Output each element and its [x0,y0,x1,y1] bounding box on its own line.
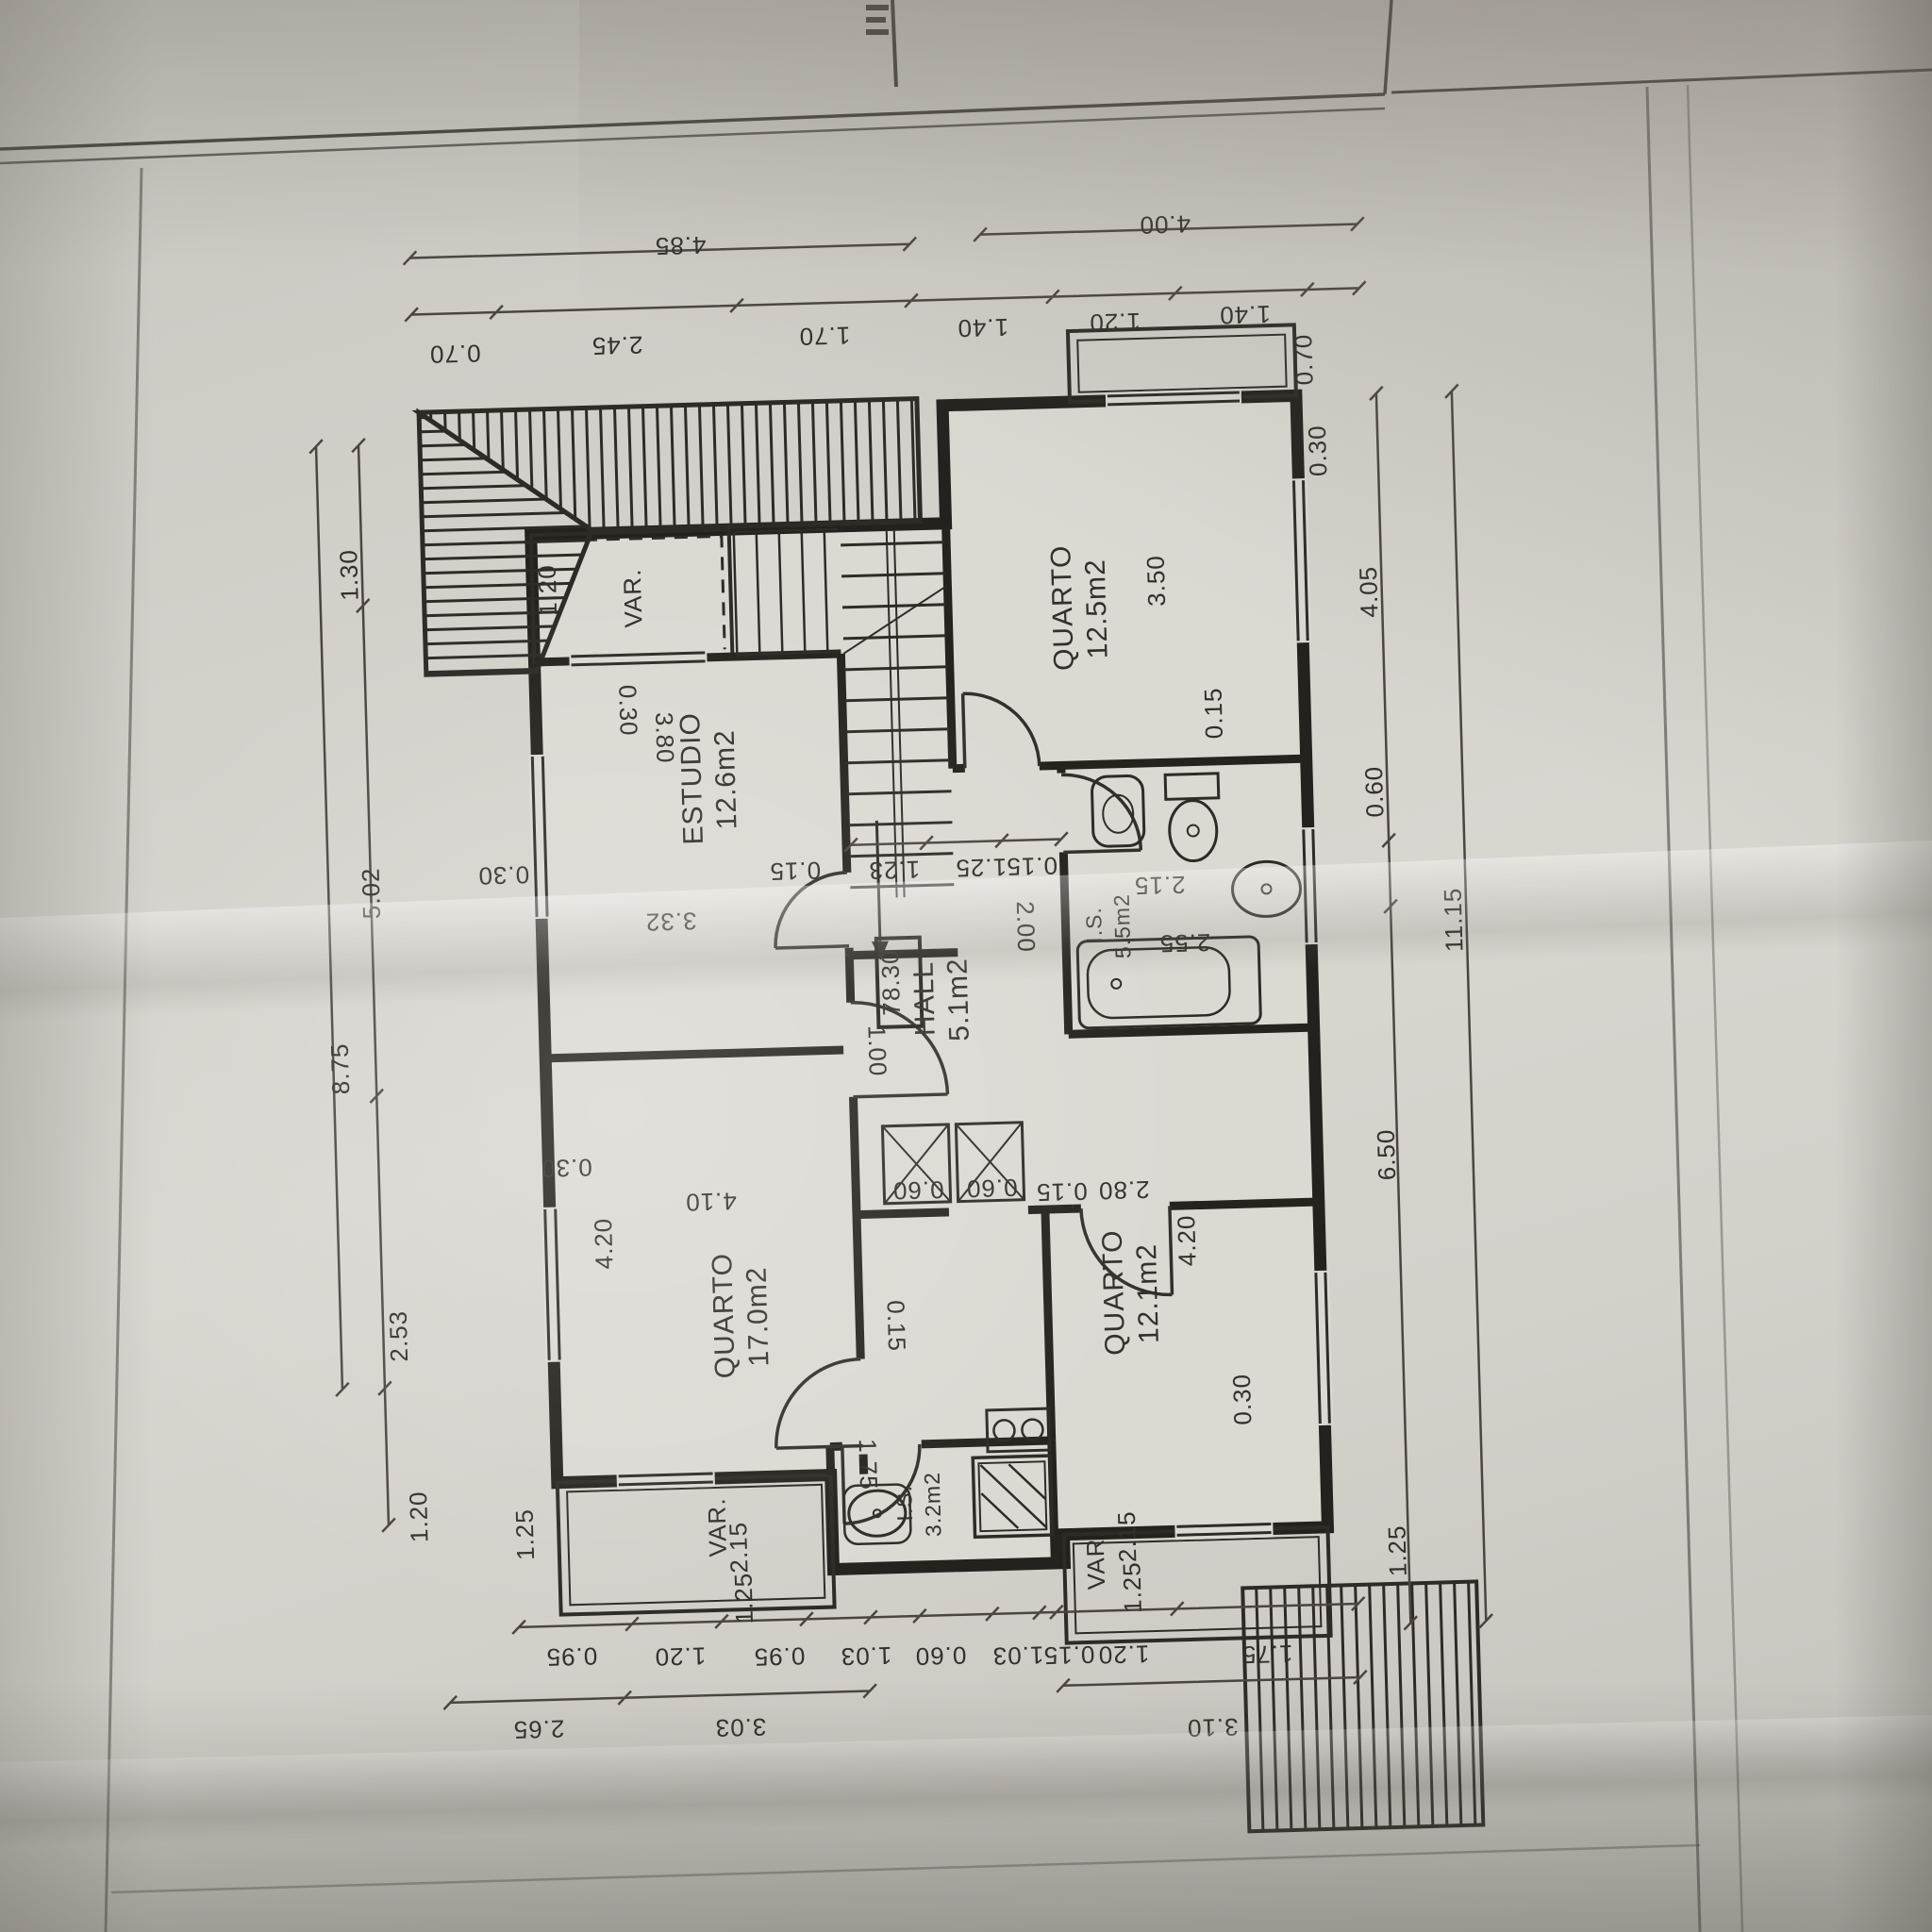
dim-label: 3.50 [1141,555,1172,607]
dim-label: 3.80 [650,711,680,763]
dim-label: 1.75 [854,1439,884,1491]
dim-label: 5.02 [357,867,387,919]
dim-label: 11.15 [1439,887,1469,952]
dim-label: 2.55 [1158,928,1210,958]
dim-label: 1.20 [1097,1640,1149,1670]
dim-label: 2.53 [384,1310,414,1362]
dim-label: 1.40 [1219,300,1271,330]
level-mark: 78.30 [875,949,906,1016]
dim-label: 3.10 [1187,1713,1239,1743]
terrace-hatch [1242,1581,1483,1831]
dim-label: 0.15 [1036,1177,1088,1207]
dim-label: 4.05 [1354,566,1384,618]
dim-label: 1.20 [1089,308,1141,338]
dim-label: 0.70 [1289,333,1319,385]
dim-label: 4.85 [655,231,707,261]
room-area-quarto-1: 12.5m2 [1080,558,1114,659]
balcony-var-bottom-left [558,1475,835,1615]
dim-label: 2.65 [512,1715,564,1745]
dim-label: 1.70 [798,322,850,352]
dim-label: 1.40 [957,313,1008,343]
dim-label: 2.45 [591,331,642,361]
dim-label: 6.50 [1372,1128,1402,1180]
room-area-quarto-2: 17.0m2 [741,1266,774,1367]
room-area-is-1: 5.5m2 [1109,893,1136,959]
room-label-is-1: I.S. [1081,907,1107,943]
dim-label: 0.60 [914,1641,966,1672]
dim-label: 2.80 [1098,1175,1150,1206]
dim-label: 2.15 [1112,1510,1142,1562]
dim-label: 0.30 [541,1153,592,1183]
dim-label: 3.03 [714,1713,766,1743]
dim-label: 4.20 [589,1217,619,1269]
dim-label: 0.15 [1199,687,1229,739]
dim-label: 1.25 [1382,1524,1412,1576]
dim-label: 1.25 [729,1572,759,1624]
dim-label: 4.00 [1139,209,1191,240]
dim-label: 1.20 [533,564,563,616]
dim-label: 4.10 [685,1187,737,1217]
sheet-corner-mark [866,8,889,32]
dim-label: 0.15 [882,1300,912,1352]
room-area-is-2: 3.2m2 [920,1472,946,1538]
dim-label: 0.70 [429,339,481,369]
room-label-quarto-2: QUARTO [707,1253,741,1379]
floor-plan-drawing: QUARTO 12.5m2 ESTUDIO 12.6m2 HALL 5.1m2 … [0,0,1932,1932]
dim-label: 1.20 [654,1641,706,1672]
dim-label: 4.20 [1172,1214,1202,1266]
room-label-is-2: I.S. [891,1485,917,1522]
dim-label: 0.30 [477,860,529,891]
dim-label: 0.30 [1303,425,1333,476]
dim-label: 1.25 [955,853,1007,883]
photo-of-floor-plan: QUARTO 12.5m2 ESTUDIO 12.6m2 HALL 5.1m2 … [0,0,1932,1932]
dim-label: 0.95 [753,1641,805,1672]
dim-label: 0.15 [1006,852,1058,882]
dim-label: 0.60 [966,1174,1018,1204]
dim-label: 1.00 [862,1024,892,1076]
dim-label: 0.30 [613,685,643,737]
dim-label: 1.23 [868,856,920,886]
dim-label: 0.60 [1359,765,1390,817]
room-label-quarto-3: QUARTO [1097,1229,1132,1356]
dim-label: 1.75 [1241,1640,1292,1670]
dim-label: 0.15 [769,857,821,887]
dim-label: 2.00 [1011,901,1041,953]
dim-label: 1.30 [334,549,364,601]
dim-label: 1.20 [404,1491,434,1542]
room-area-estudio: 12.6m2 [709,729,743,830]
room-area-hall: 5.1m2 [941,958,974,1041]
dim-label: 1.25 [510,1508,541,1560]
room-label-hall: HALL [908,961,941,1037]
dim-label: 1.25 [1117,1561,1147,1613]
dim-label: 0.15 [1042,1641,1094,1671]
dim-label: 3.32 [645,907,697,937]
dim-label: 0.95 [545,1642,597,1673]
room-label-quarto-1: QUARTO [1045,544,1080,671]
dim-label: 2.15 [1134,871,1186,901]
dim-label: 1.03 [840,1641,891,1672]
label-var-bottom-right: VAR. [1080,1530,1110,1591]
dim-label: 8.75 [325,1042,356,1094]
label-var-top: VAR. [618,568,648,628]
dim-label: 0.60 [892,1175,944,1206]
dim-label: 0.30 [1227,1374,1257,1425]
dim-label: 1.03 [991,1641,1043,1671]
dim-label: 2.15 [724,1522,754,1574]
room-area-quarto-3: 12.1m2 [1131,1243,1165,1344]
